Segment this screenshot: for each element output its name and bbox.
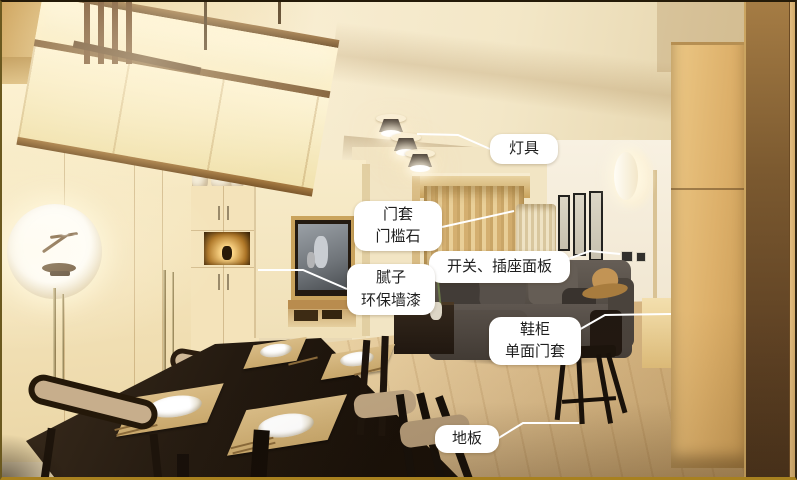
orchid-flower xyxy=(72,235,80,241)
annotated-room-photo: 灯具 门套 门槛石 开关、插座面板 腻子 环保墙漆 鞋柜 单面门套 地板 xyxy=(0,0,797,480)
spotlight-glow xyxy=(410,165,430,172)
cabinet-handle xyxy=(227,274,229,290)
wall-art-panel xyxy=(558,195,570,251)
label-putty-text: 腻子 xyxy=(376,267,406,290)
label-switch-socket-panel: 开关、插座面板 xyxy=(429,251,570,283)
orchid-flower xyxy=(60,228,69,235)
lamp-hanging-rod xyxy=(204,2,207,50)
wall-socket-panel xyxy=(636,252,646,262)
label-door-frame-text2: 门槛石 xyxy=(375,226,420,249)
table-leg xyxy=(177,454,189,477)
cabinet-handle xyxy=(227,206,229,220)
label-floor: 地板 xyxy=(435,425,499,453)
shoe-cabinet xyxy=(671,42,747,468)
label-floor-text: 地板 xyxy=(452,428,482,451)
corner-shadow xyxy=(2,422,82,477)
shoe-cabinet-seam xyxy=(671,188,747,190)
label-switch-socket-text: 开关、插座面板 xyxy=(447,256,552,279)
round-display-niche xyxy=(7,204,102,299)
walnut-door-frame-column xyxy=(744,2,795,477)
shelf-box xyxy=(294,310,318,321)
label-lighting-text: 灯具 xyxy=(509,138,539,161)
wall-art-panel xyxy=(573,193,586,256)
wall-shelf xyxy=(288,300,356,309)
label-shoe-cabinet-text: 鞋柜 xyxy=(520,319,550,342)
cabinet-door-seam xyxy=(191,230,259,231)
orchid-flower xyxy=(48,224,56,230)
cabinet-handle xyxy=(218,274,220,290)
shelf-box xyxy=(322,310,342,319)
label-door-frame-threshold: 门套 门槛石 xyxy=(354,201,442,251)
label-putty-text2: 环保墙漆 xyxy=(361,290,421,313)
label-shoe-cabinet-door-frame: 鞋柜 单面门套 xyxy=(489,317,581,365)
label-lighting: 灯具 xyxy=(490,134,558,164)
bonsai-pot-base xyxy=(50,271,70,276)
wall-sconce xyxy=(614,152,638,200)
lamp-hanging-rod xyxy=(278,2,281,24)
label-putty-eco-paint: 腻子 环保墙漆 xyxy=(347,264,435,315)
tv-screen-image xyxy=(314,236,328,268)
cabinet-door-seam xyxy=(191,267,259,268)
table-leg xyxy=(250,430,270,477)
label-door-frame-text: 门套 xyxy=(383,204,413,227)
tv-screen-image xyxy=(307,252,315,268)
label-shoe-cabinet-text2: 单面门套 xyxy=(505,341,565,364)
door-frame-strip xyxy=(789,2,795,477)
cabinet-handle xyxy=(218,206,220,220)
niche-ornament xyxy=(222,246,232,260)
